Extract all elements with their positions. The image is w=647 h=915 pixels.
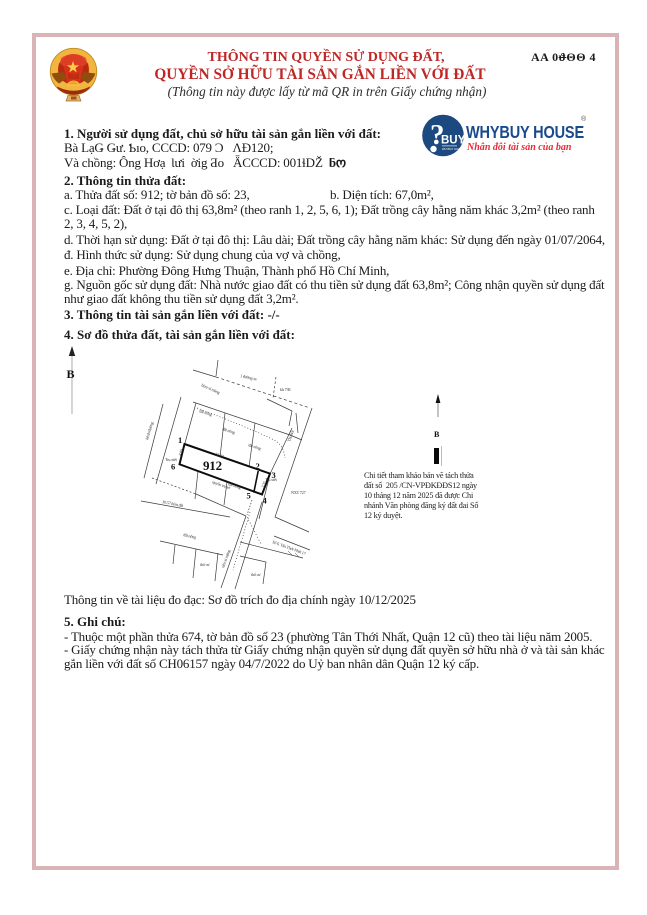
svg-text:thổ cư: thổ cư	[200, 562, 210, 567]
svg-text:Trụ xiết: Trụ xiết	[165, 457, 178, 462]
svg-text:NXT 727: NXT 727	[291, 490, 306, 495]
svg-text:đất nông: đất nông	[199, 408, 214, 417]
svg-text:5: 5	[247, 491, 251, 501]
svg-text:4: 4	[263, 496, 268, 506]
svg-text:nền xi măng: nền xi măng	[220, 548, 231, 568]
svg-text:thổ cư: thổ cư	[251, 572, 261, 577]
svg-text:1 đường xe: 1 đường xe	[240, 373, 258, 381]
svg-text:Thu hồi: Thu hồi	[286, 429, 295, 443]
svg-text:kênh/đường: kênh/đường	[144, 420, 154, 440]
svg-text:kh 738: kh 738	[280, 387, 290, 392]
svg-text:Trụ xiết: Trụ xiết	[265, 477, 278, 482]
svg-text:2: 2	[256, 461, 260, 471]
svg-text:1: 1	[178, 435, 182, 445]
svg-text:B: B	[67, 367, 75, 381]
svg-text:hẻm xi măng: hẻm xi măng	[201, 382, 222, 395]
svg-text:đất nông: đất nông	[183, 532, 198, 540]
svg-text:đất nông: đất nông	[222, 426, 237, 435]
svg-text:đất nông: đất nông	[248, 442, 263, 451]
svg-text:B: B	[434, 430, 440, 439]
svg-text:6: 6	[171, 462, 175, 472]
svg-text:912: 912	[203, 458, 222, 473]
